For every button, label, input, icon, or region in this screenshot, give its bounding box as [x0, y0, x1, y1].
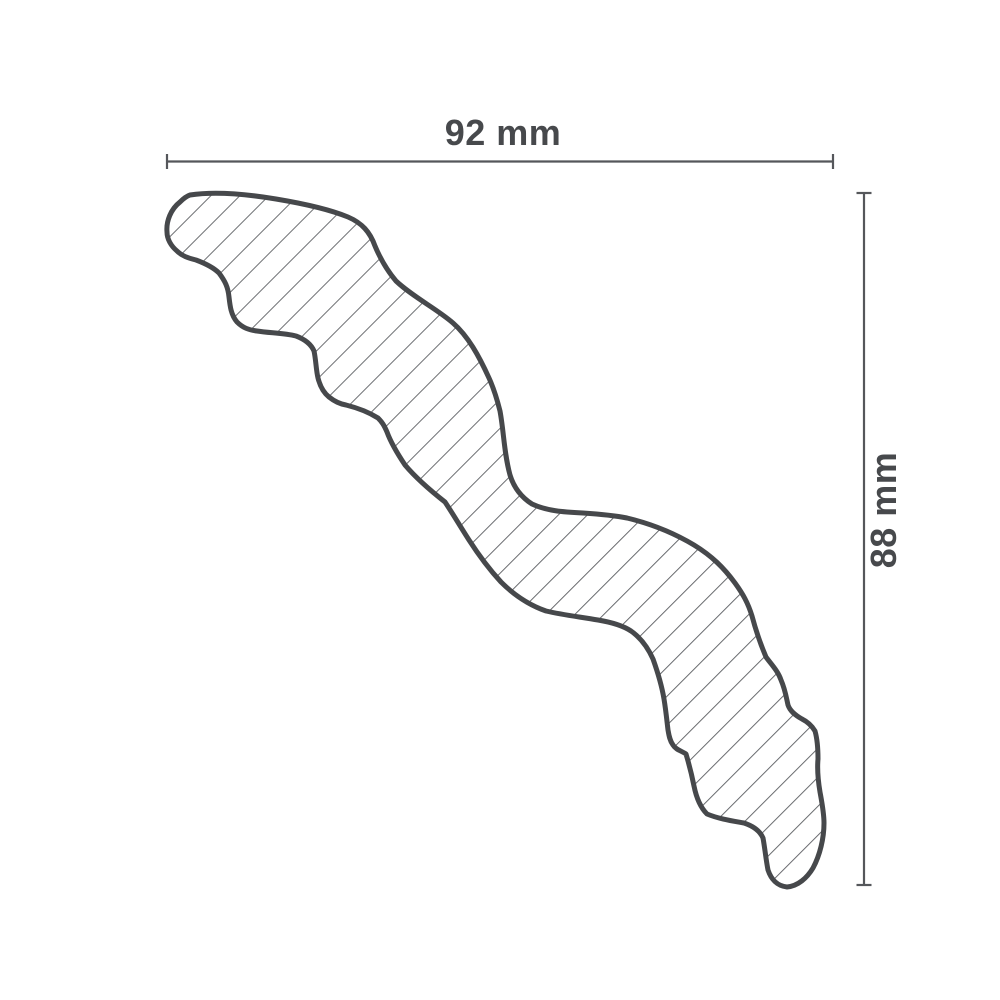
- width-dimension-line: [167, 154, 833, 169]
- technical-drawing-page: 92 mm 88 mm: [0, 0, 1000, 1000]
- molding-profile-outline: [167, 193, 824, 887]
- height-dimension-label: 88 mm: [863, 452, 905, 569]
- width-dimension-label: 92 mm: [353, 112, 653, 154]
